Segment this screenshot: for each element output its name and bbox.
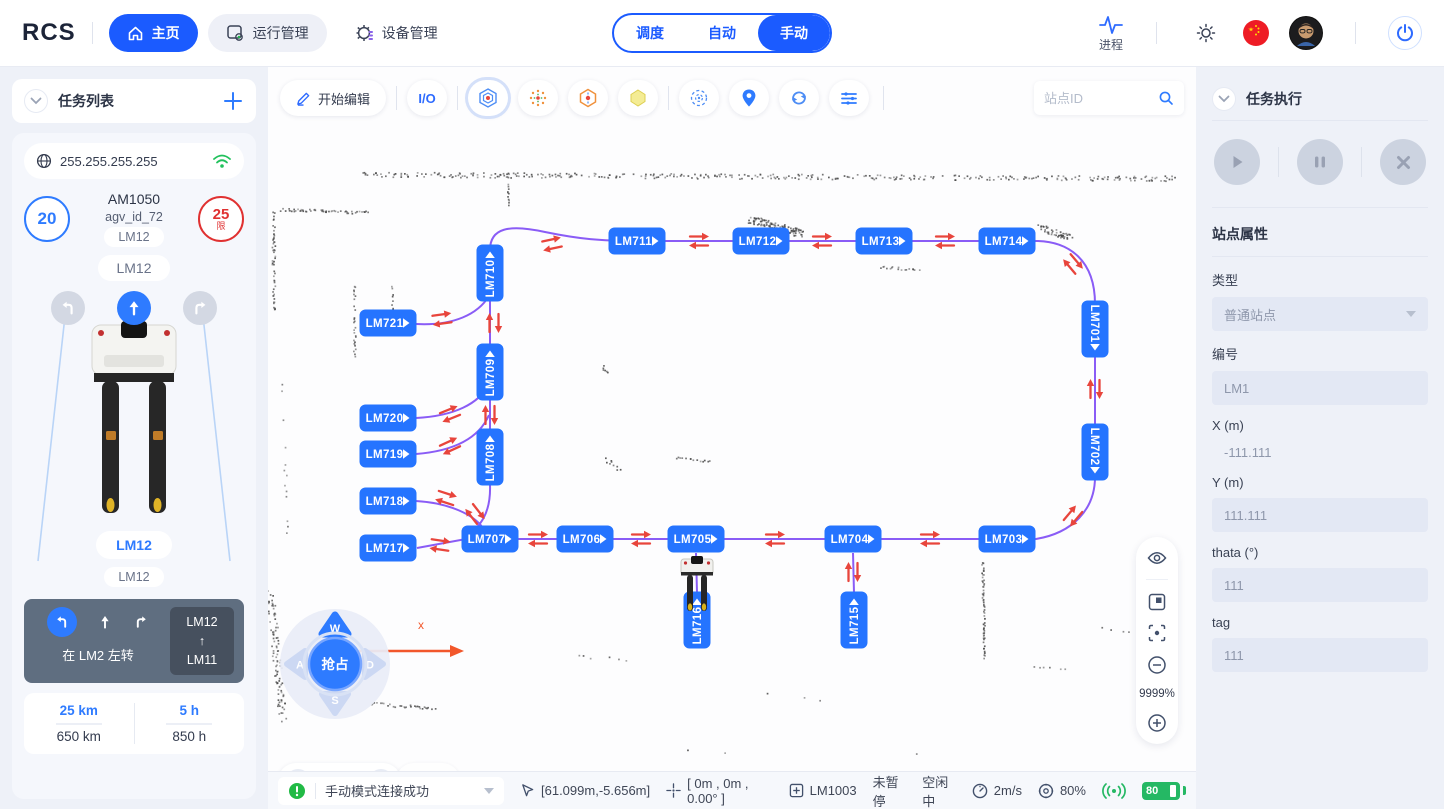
field-tag: tag 111 (1212, 615, 1428, 672)
svg-text:LM706: LM706 (563, 534, 601, 546)
route-path (417, 228, 1095, 548)
svg-text:LM704: LM704 (831, 534, 869, 546)
gear-icon (355, 24, 374, 42)
map-station-LM715[interactable]: LM715 (841, 592, 868, 649)
divider (1156, 22, 1157, 44)
hours-stat: 5 h 850 h (135, 703, 245, 744)
svg-text:LM712: LM712 (739, 236, 777, 248)
route-arrow (431, 309, 453, 328)
station-search-input[interactable] (1044, 91, 1152, 106)
map-station-LM701[interactable]: LM701 (1082, 301, 1109, 358)
power-button[interactable] (1388, 16, 1422, 50)
nav-home[interactable]: 主页 (109, 14, 198, 52)
front-station-pill: LM12 (96, 531, 172, 559)
minimap-button[interactable] (1148, 593, 1166, 611)
topbar-right: 进程 (1098, 14, 1422, 53)
visibility-button[interactable] (1147, 550, 1167, 566)
station-pill: LM12 (104, 227, 163, 247)
home-icon (127, 25, 144, 42)
chevron-down-icon (1406, 311, 1416, 317)
back-station-pill: LM12 (104, 567, 163, 587)
mode-dispatch[interactable]: 调度 (614, 15, 686, 51)
speed-status: 2m/s (972, 783, 1022, 799)
map-station-LM719[interactable]: LM719 (360, 441, 417, 468)
app-logo: RCS (22, 19, 76, 47)
map-area[interactable]: LM710LM711LM712LM713LM714LM721LM709LM720… (268, 67, 1196, 809)
odometer-card: 25 km 650 km 5 h 850 h (24, 693, 244, 754)
task-list-title: 任务列表 (58, 91, 114, 111)
work-state: 空闲中 (922, 772, 956, 809)
hint-straight-icon (97, 614, 113, 630)
gauge-icon (972, 783, 988, 799)
layer-scatter-button[interactable] (518, 80, 558, 116)
field-type: 类型 普通站点 (1212, 270, 1428, 331)
monitor-icon (226, 24, 245, 42)
task-exec-header: 任务执行 (1212, 77, 1428, 121)
layer-hexagon-button[interactable] (568, 80, 608, 116)
cursor-position: [61.099m,-5.656m] (520, 783, 650, 798)
theme-button[interactable] (1189, 16, 1223, 50)
robot-pose: [ 0m , 0m , 0.00° ] (666, 776, 773, 806)
task-exec-panel: 任务执行 站点属性 类型 普通站点 编号 LM1 X (m) -111.111 … (1196, 67, 1444, 809)
layer-lidar-button[interactable] (468, 80, 508, 116)
go-straight-button[interactable] (117, 291, 151, 325)
divider (1355, 22, 1356, 44)
robot-ip: 255.255.255.255 (60, 154, 204, 169)
current-station: LM1003 (789, 783, 857, 798)
map-station-LM702[interactable]: LM702 (1082, 424, 1109, 481)
task-exec-title: 任务执行 (1246, 89, 1302, 109)
manual-turn-controls (51, 291, 217, 325)
plus-square-icon (789, 783, 804, 798)
map-station-LM717[interactable]: LM717 (360, 535, 417, 562)
robot-card: 255.255.255.255 20 AM1050 agv_id_72 LM12… (12, 133, 256, 799)
navigation-hint-card: 在 LM2 左转 LM12 ↑ LM11 (24, 599, 244, 683)
mode-switch: 调度 自动 手动 (612, 13, 832, 53)
turn-left-button[interactable] (51, 291, 85, 325)
svg-text:LM705: LM705 (674, 534, 712, 546)
task-cancel-button[interactable] (1380, 139, 1426, 185)
map-station-LM707[interactable]: LM707 (462, 526, 519, 553)
svg-text:LM708: LM708 (485, 443, 497, 481)
nav-devices[interactable]: 设备管理 (337, 14, 456, 52)
map-station-LM713[interactable]: LM713 (856, 228, 913, 255)
station-props-title: 站点属性 (1212, 208, 1428, 257)
map-station-LM708[interactable]: LM708 (477, 429, 504, 486)
refresh-button[interactable] (779, 80, 819, 116)
field-theta: thata (°) 111 (1212, 545, 1428, 602)
map-station-LM706[interactable]: LM706 (557, 526, 614, 553)
collapse-button[interactable] (24, 89, 48, 113)
svg-text:LM713: LM713 (862, 236, 900, 248)
distance-stat: 25 km 650 km (24, 703, 134, 744)
route-arrow (1060, 251, 1085, 277)
process-button[interactable]: 进程 (1098, 14, 1124, 53)
svg-text:抢占: 抢占 (322, 656, 349, 672)
route-path (416, 296, 489, 324)
robot-agv-id: agv_id_72 (105, 210, 163, 224)
svg-text:LM701: LM701 (1088, 305, 1100, 343)
map-view-tools: 9999% (1136, 537, 1178, 744)
map-station-LM705[interactable]: LM705 (668, 526, 725, 553)
map-toolbar: 开始编辑 I/O (280, 80, 1184, 116)
field-x: X (m) -111.111 (1212, 418, 1428, 462)
route-arrow (486, 313, 502, 333)
mode-manual[interactable]: 手动 (758, 15, 830, 51)
speed-limit-badge: 25限 (198, 196, 244, 242)
svg-text:LM718: LM718 (366, 496, 404, 508)
route-path (853, 553, 854, 593)
manual-joystick[interactable]: W A D S 抢占 (274, 603, 396, 725)
x-value: -111.111 (1212, 441, 1428, 462)
map-station-LM704[interactable]: LM704 (825, 526, 882, 553)
nav-operation-label: 运行管理 (253, 23, 309, 43)
task-exec-controls (1212, 121, 1428, 208)
task-play-button[interactable] (1214, 139, 1260, 185)
svg-text:LM721: LM721 (366, 318, 404, 330)
route-arrow (437, 434, 462, 457)
pause-state: 未暂停 (873, 772, 907, 809)
axis-x-label: x (418, 618, 424, 632)
layer-zone-button[interactable] (618, 80, 658, 116)
svg-text:LM719: LM719 (366, 449, 404, 461)
wifi-icon (212, 153, 232, 169)
mode-message: 手动模式连接成功 (325, 781, 475, 800)
avatar[interactable] (1289, 16, 1323, 50)
map-station-LM711[interactable]: LM711 (609, 228, 666, 255)
robot-model: AM1050 (108, 191, 160, 207)
svg-text:LM707: LM707 (468, 534, 506, 546)
y-input[interactable]: 111.111 (1212, 498, 1428, 532)
robot-id-block: AM1050 agv_id_72 LM12 (104, 191, 163, 247)
route-arrow (541, 234, 564, 254)
confidence-status: 80% (1038, 783, 1086, 799)
svg-text:LM714: LM714 (985, 236, 1023, 248)
main-nav: 主页 运行管理 设备管理 (109, 14, 456, 52)
zoom-out-button[interactable] (1147, 655, 1167, 675)
svg-text:LM710: LM710 (485, 260, 497, 298)
map-canvas[interactable]: LM710LM711LM712LM713LM714LM721LM709LM720… (268, 67, 1196, 771)
map-station-LM710[interactable]: LM710 (477, 245, 504, 302)
robot-ip-row[interactable]: 255.255.255.255 (24, 143, 244, 179)
hint-text: 在 LM2 左转 (62, 645, 134, 664)
svg-text:LM716: LM716 (692, 607, 704, 645)
hint-turn-right-icon (133, 614, 149, 630)
china-flag-icon (1242, 19, 1270, 47)
topbar: RCS 主页 运行管理 设备管理 调度 自动 手动 进程 (0, 0, 1444, 67)
theta-input[interactable]: 111 (1212, 568, 1428, 602)
battery-icon: 80 (1142, 782, 1180, 800)
map-station-LM721[interactable]: LM721 (360, 310, 417, 337)
radar-button[interactable] (679, 80, 719, 116)
process-label: 进程 (1099, 36, 1123, 53)
map-station-LM709[interactable]: LM709 (477, 344, 504, 401)
add-task-button[interactable] (222, 90, 244, 112)
chevron-down-icon[interactable] (484, 788, 494, 794)
map-station-LM718[interactable]: LM718 (360, 488, 417, 515)
svg-text:LM703: LM703 (985, 534, 1023, 546)
search-icon[interactable] (1158, 90, 1174, 106)
mode-auto[interactable]: 自动 (686, 15, 758, 51)
task-list-panel: 任务列表 255.255.255.255 20 AM1050 agv_id_72… (0, 67, 268, 809)
battery-indicator: 80 (1142, 782, 1186, 800)
svg-text:LM720: LM720 (366, 413, 404, 425)
waveform-icon (1098, 14, 1124, 36)
svg-text:LM711: LM711 (615, 236, 652, 248)
hint-from-to: LM12 ↑ LM11 (170, 607, 234, 675)
language-button[interactable] (1239, 16, 1273, 50)
signal-icon (1102, 783, 1126, 799)
seize-button[interactable]: 抢占 (309, 638, 361, 690)
nav-devices-label: 设备管理 (382, 23, 438, 43)
robot-speed-row: 20 AM1050 agv_id_72 LM12 25限 (24, 191, 244, 247)
divider (92, 22, 93, 44)
svg-text:LM715: LM715 (849, 606, 861, 644)
sun-icon (1196, 23, 1216, 43)
svg-text:LM709: LM709 (485, 359, 497, 397)
code-input[interactable]: LM1 (1212, 371, 1428, 405)
nav-home-label: 主页 (152, 23, 180, 43)
speed-badge: 20 (24, 196, 70, 242)
map-station-LM712[interactable]: LM712 (733, 228, 790, 255)
crosshair-icon (666, 783, 681, 798)
mode-message-box[interactable]: 手动模式连接成功 (278, 777, 504, 805)
zoom-level: 9999% (1139, 688, 1175, 700)
collapse-button[interactable] (1212, 87, 1236, 111)
power-icon (1395, 23, 1415, 43)
nav-operation[interactable]: 运行管理 (208, 14, 327, 52)
globe-icon (36, 153, 52, 169)
field-y: Y (m) 111.111 (1212, 475, 1428, 532)
map-station-LM714[interactable]: LM714 (979, 228, 1036, 255)
pin-button[interactable] (729, 80, 769, 116)
user-avatar-icon (1289, 16, 1323, 50)
task-pause-button[interactable] (1297, 139, 1343, 185)
svg-text:LM702: LM702 (1088, 428, 1100, 466)
io-button[interactable]: I/O (407, 80, 447, 116)
field-code: 编号 LM1 (1212, 344, 1428, 405)
pencil-icon (296, 91, 311, 106)
forklift-graphic (24, 319, 244, 567)
tag-input[interactable]: 111 (1212, 638, 1428, 672)
info-icon (288, 782, 306, 800)
hint-turn-left-icon (47, 607, 77, 637)
front-back-stations: LM12 LM12 (96, 531, 172, 587)
svg-text:LM717: LM717 (366, 543, 404, 555)
map-station-LM720[interactable]: LM720 (360, 405, 417, 432)
task-list-header: 任务列表 (12, 79, 256, 123)
cursor-icon (520, 783, 535, 798)
svg-text:S: S (331, 695, 338, 707)
map-station-LM703[interactable]: LM703 (979, 526, 1036, 553)
filter-button[interactable] (829, 80, 869, 116)
station-pill: LM12 (98, 255, 169, 281)
center-focus-button[interactable] (1148, 624, 1166, 642)
zoom-in-button[interactable] (1147, 713, 1167, 733)
type-select[interactable]: 普通站点 (1212, 297, 1428, 331)
station-search (1034, 81, 1184, 115)
start-edit-button[interactable]: 开始编辑 (280, 80, 386, 116)
target-icon (1038, 783, 1054, 799)
turn-right-button[interactable] (183, 291, 217, 325)
status-bar: 手动模式连接成功 [61.099m,-5.656m] [ 0m , 0m , 0… (268, 771, 1196, 809)
